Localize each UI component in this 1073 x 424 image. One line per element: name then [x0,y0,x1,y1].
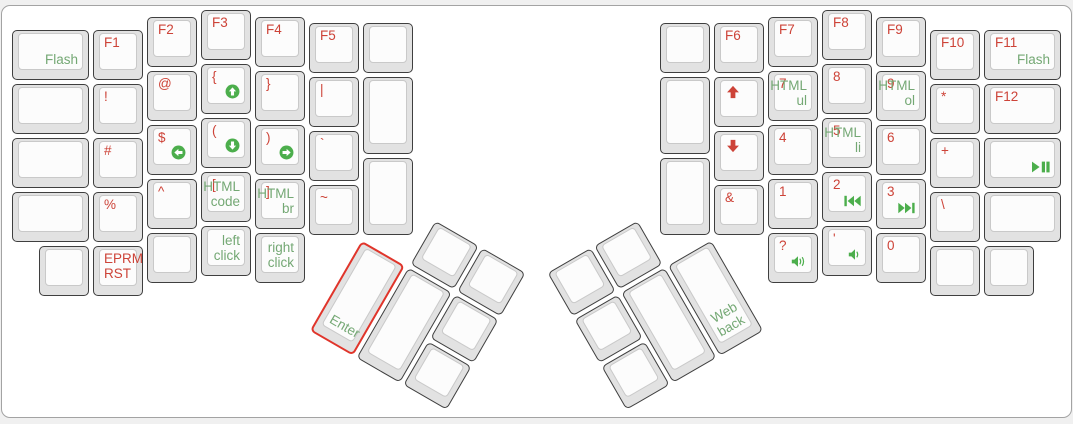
red-arrow-up-icon [726,85,740,99]
keycap-face: EPRM RST [99,249,137,286]
key-cursor-down[interactable] [714,131,764,181]
keycap-face: F3 [207,13,245,50]
key-blank[interactable] [12,138,89,188]
key-blank[interactable] [363,158,413,235]
keycap-face: * [936,87,974,124]
keycap-face [990,195,1055,232]
key-legend-primary: ^ [158,184,164,199]
key-f5[interactable]: F5 [309,23,359,73]
key-f12[interactable]: F12 [984,84,1061,134]
key-blank[interactable] [363,77,413,154]
keycap-face [936,249,974,286]
keyboard: FlashF1!#%EPRM RSTF2@$^F3{([HTML codelef… [0,0,1073,424]
key-f9[interactable]: F9 [876,17,926,67]
keycap-face: ? [774,236,812,273]
keycap-face: 6 [882,128,920,165]
keycap-face: # [99,141,137,178]
key-legend-primary: ! [104,89,108,104]
key-pipe[interactable]: | [309,77,359,127]
keycap-face [554,253,605,304]
keycap-face [990,249,1028,286]
keycap-face: 9HTML ol [882,74,920,111]
volume-up-icon [791,255,807,268]
key-open-brace-scroll-up[interactable]: { [201,64,251,114]
key-legend-primary: 1 [779,184,787,199]
key-f7[interactable]: F7 [768,17,818,67]
key-legend-primary: F9 [887,22,903,37]
keycap-face [720,134,758,171]
key-apostrophe-volume-down[interactable]: ' [822,226,872,276]
key-f1[interactable]: F1 [93,30,143,80]
key-percent[interactable]: % [93,192,143,242]
keycap-face: left click [207,229,245,266]
key-legend-primary: | [320,82,324,97]
key-legend-primary: F5 [320,28,336,43]
keycap-face: + [936,141,974,178]
key-legend-primary: % [104,197,116,212]
keycap-face: F1 [99,33,137,70]
key-legend-primary: { [212,69,217,84]
keycap-face [369,80,407,144]
key-8[interactable]: 8 [822,64,872,114]
key-legend-primary: 0 [887,238,895,253]
key-f10[interactable]: F10 [930,30,980,80]
key-blank[interactable] [660,158,710,235]
key-tilde[interactable]: ~ [309,185,359,235]
key-legend-primary: F1 [104,35,120,50]
key-legend-primary: @ [158,76,172,91]
key-blank[interactable] [984,192,1061,242]
key-asterisk[interactable]: * [930,84,980,134]
keycap-face: F11Flash [990,33,1055,70]
prev-track-icon [844,195,861,207]
key-legend-primary: F3 [212,15,228,30]
keycap-face: $ [153,128,191,165]
key-legend-secondary: HTML ol [878,78,915,108]
key-at[interactable]: @ [147,71,197,121]
key-legend-primary: F8 [833,15,849,30]
key-legend-primary: F4 [266,22,282,37]
keycap-face: F2 [153,20,191,57]
key-legend-primary: \ [941,197,945,212]
key-hash[interactable]: # [93,138,143,188]
scroll-right-circle-icon [279,145,294,160]
keycap-face: F9 [882,20,920,57]
key-5-html-li[interactable]: 5HTML li [822,118,872,168]
key-legend-secondary: right click [268,240,294,270]
key-3-next-track[interactable]: 3 [876,179,926,229]
keycap-face: ) [261,128,299,165]
keycap-face [18,195,83,232]
key-dollar-scroll-left[interactable]: $ [147,125,197,175]
key-ampersand[interactable]: & [714,185,764,235]
key-7-html-ul[interactable]: 7HTML ul [768,71,818,121]
key-legend-primary: # [104,143,112,158]
key-legend-primary: 8 [833,69,841,84]
key-legend-primary: } [266,76,271,91]
key-6[interactable]: 6 [876,125,926,175]
play-pause-icon [1031,161,1050,173]
key-flash[interactable]: Flash [12,30,89,80]
key-backtick[interactable]: ` [309,131,359,181]
key-legend-primary: $ [158,130,166,145]
keycap-face: ]HTML br [261,182,299,219]
key-blank[interactable] [363,23,413,73]
keycap-face [601,226,652,277]
scroll-left-circle-icon [171,145,186,160]
key-f4[interactable]: F4 [255,17,305,67]
keycap-face [421,226,472,277]
key-legend-primary: F6 [725,28,741,43]
key-legend-primary: 3 [887,184,895,199]
keycap-face: [HTML code [207,175,245,212]
key-open-bracket-html-code[interactable]: [HTML code [201,172,251,222]
keycap-face [467,253,518,304]
keycap-face: 8 [828,67,866,104]
key-f6[interactable]: F6 [714,23,764,73]
keycap-face: 1 [774,182,812,219]
key-legend-primary: ? [779,238,787,253]
keycap-face: 2 [828,175,866,212]
keycap-face [720,80,758,117]
keycap-face: ! [99,87,137,124]
key-legend-primary: + [941,143,949,158]
key-f3[interactable]: F3 [201,10,251,60]
keycap-face: % [99,195,137,232]
key-legend-primary: F12 [995,89,1018,104]
key-blank[interactable] [39,246,89,296]
scroll-down-circle-icon [225,138,240,153]
key-legend-primary: ' [833,231,836,246]
key-legend-primary: 2 [833,177,841,192]
key-legend-secondary: Web back [708,299,748,339]
keycap-face: F4 [261,20,299,57]
keycap-face: & [720,188,758,225]
keycap-face [369,26,407,63]
key-legend-secondary: Flash [45,52,78,67]
keycap-face: 3 [882,182,920,219]
keycap-face [581,300,632,351]
keycap-face [990,141,1055,178]
key-legend-primary: ~ [320,190,328,205]
key-open-paren-scroll-down[interactable]: ( [201,118,251,168]
keycap-face [413,347,464,398]
keycap-face: 5HTML li [828,121,866,158]
key-left-click[interactable]: left click [201,226,251,276]
key-question-volume-up[interactable]: ? [768,233,818,283]
volume-down-icon [848,248,861,261]
keycap-face: F6 [720,26,758,63]
key-legend-primary: EPRM RST [104,251,143,281]
key-legend-primary: ) [266,130,271,145]
key-exclamation[interactable]: ! [93,84,143,134]
key-right-click[interactable]: right click [255,233,305,283]
scroll-up-circle-icon [225,84,240,99]
keycap-face [18,141,83,178]
key-9-html-ol[interactable]: 9HTML ol [876,71,926,121]
keycap-face [666,80,704,144]
keycap-face: ( [207,121,245,158]
key-blank[interactable] [984,246,1034,296]
keycap-face [666,26,704,63]
keycap-face: F12 [990,87,1055,124]
keycap-face: ' [828,229,866,266]
key-f11-flash[interactable]: F11Flash [984,30,1061,80]
key-legend-primary: 4 [779,130,787,145]
keycap-face: ^ [153,182,191,219]
key-legend-secondary: HTML ul [770,78,807,108]
key-blank[interactable] [930,246,980,296]
keycap-face [18,87,83,124]
keycap-face: F7 [774,20,812,57]
keycap-face: right click [261,236,299,273]
key-1[interactable]: 1 [768,179,818,229]
key-legend-primary: ` [320,136,325,151]
keycap-face: ~ [315,188,353,225]
key-legend-primary: ( [212,123,217,138]
key-blank[interactable] [12,192,89,242]
key-legend-primary: F7 [779,22,795,37]
keycap-face [153,236,191,273]
keycap-face [440,300,491,351]
keycap-face [45,249,83,286]
next-track-icon [898,202,915,214]
key-close-paren-scroll-right[interactable]: ) [255,125,305,175]
key-legend-secondary: Flash [1017,52,1050,67]
key-blank[interactable] [12,84,89,134]
keycap-face: 4 [774,128,812,165]
key-legend-secondary: HTML code [203,179,240,209]
key-legend-secondary: HTML br [257,186,294,216]
key-0[interactable]: 0 [876,233,926,283]
keycap-face: Flash [18,33,83,70]
key-legend-secondary: Enter [327,311,362,340]
key-legend-primary: * [941,89,946,104]
key-legend-primary: 6 [887,130,895,145]
keycap-face: 0 [882,236,920,273]
key-legend-primary: F2 [158,22,174,37]
key-legend-primary: & [725,190,734,205]
key-f8[interactable]: F8 [822,10,872,60]
key-legend-primary: F10 [941,35,964,50]
keycap-face: | [315,80,353,117]
keycap-face: F10 [936,33,974,70]
key-blank[interactable] [660,77,710,154]
key-legend-secondary: left click [214,233,240,263]
key-eprm-rst[interactable]: EPRM RST [93,246,143,296]
key-4[interactable]: 4 [768,125,818,175]
key-caret[interactable]: ^ [147,179,197,229]
keycap-face: @ [153,74,191,111]
keycap-face: { [207,67,245,104]
key-plus[interactable]: + [930,138,980,188]
keycap-face: ` [315,134,353,171]
keycap-face: } [261,74,299,111]
key-cursor-up[interactable] [714,77,764,127]
key-legend-primary: F11 [995,35,1017,50]
key-blank[interactable] [147,233,197,283]
key-blank[interactable] [660,23,710,73]
key-play-pause[interactable] [984,138,1061,188]
keycap-face [608,347,659,398]
key-2-prev-track[interactable]: 2 [822,172,872,222]
keycap-face: F8 [828,13,866,50]
keycap-face [666,161,704,225]
key-f2[interactable]: F2 [147,17,197,67]
key-close-bracket-html-br[interactable]: ]HTML br [255,179,305,229]
keycap-face: \ [936,195,974,232]
key-close-brace[interactable]: } [255,71,305,121]
key-backslash[interactable]: \ [930,192,980,242]
keycap-face: 7HTML ul [774,74,812,111]
red-arrow-down-icon [726,139,740,153]
keycap-face [369,161,407,225]
keycap-face: F5 [315,26,353,63]
key-legend-secondary: HTML li [824,125,861,155]
